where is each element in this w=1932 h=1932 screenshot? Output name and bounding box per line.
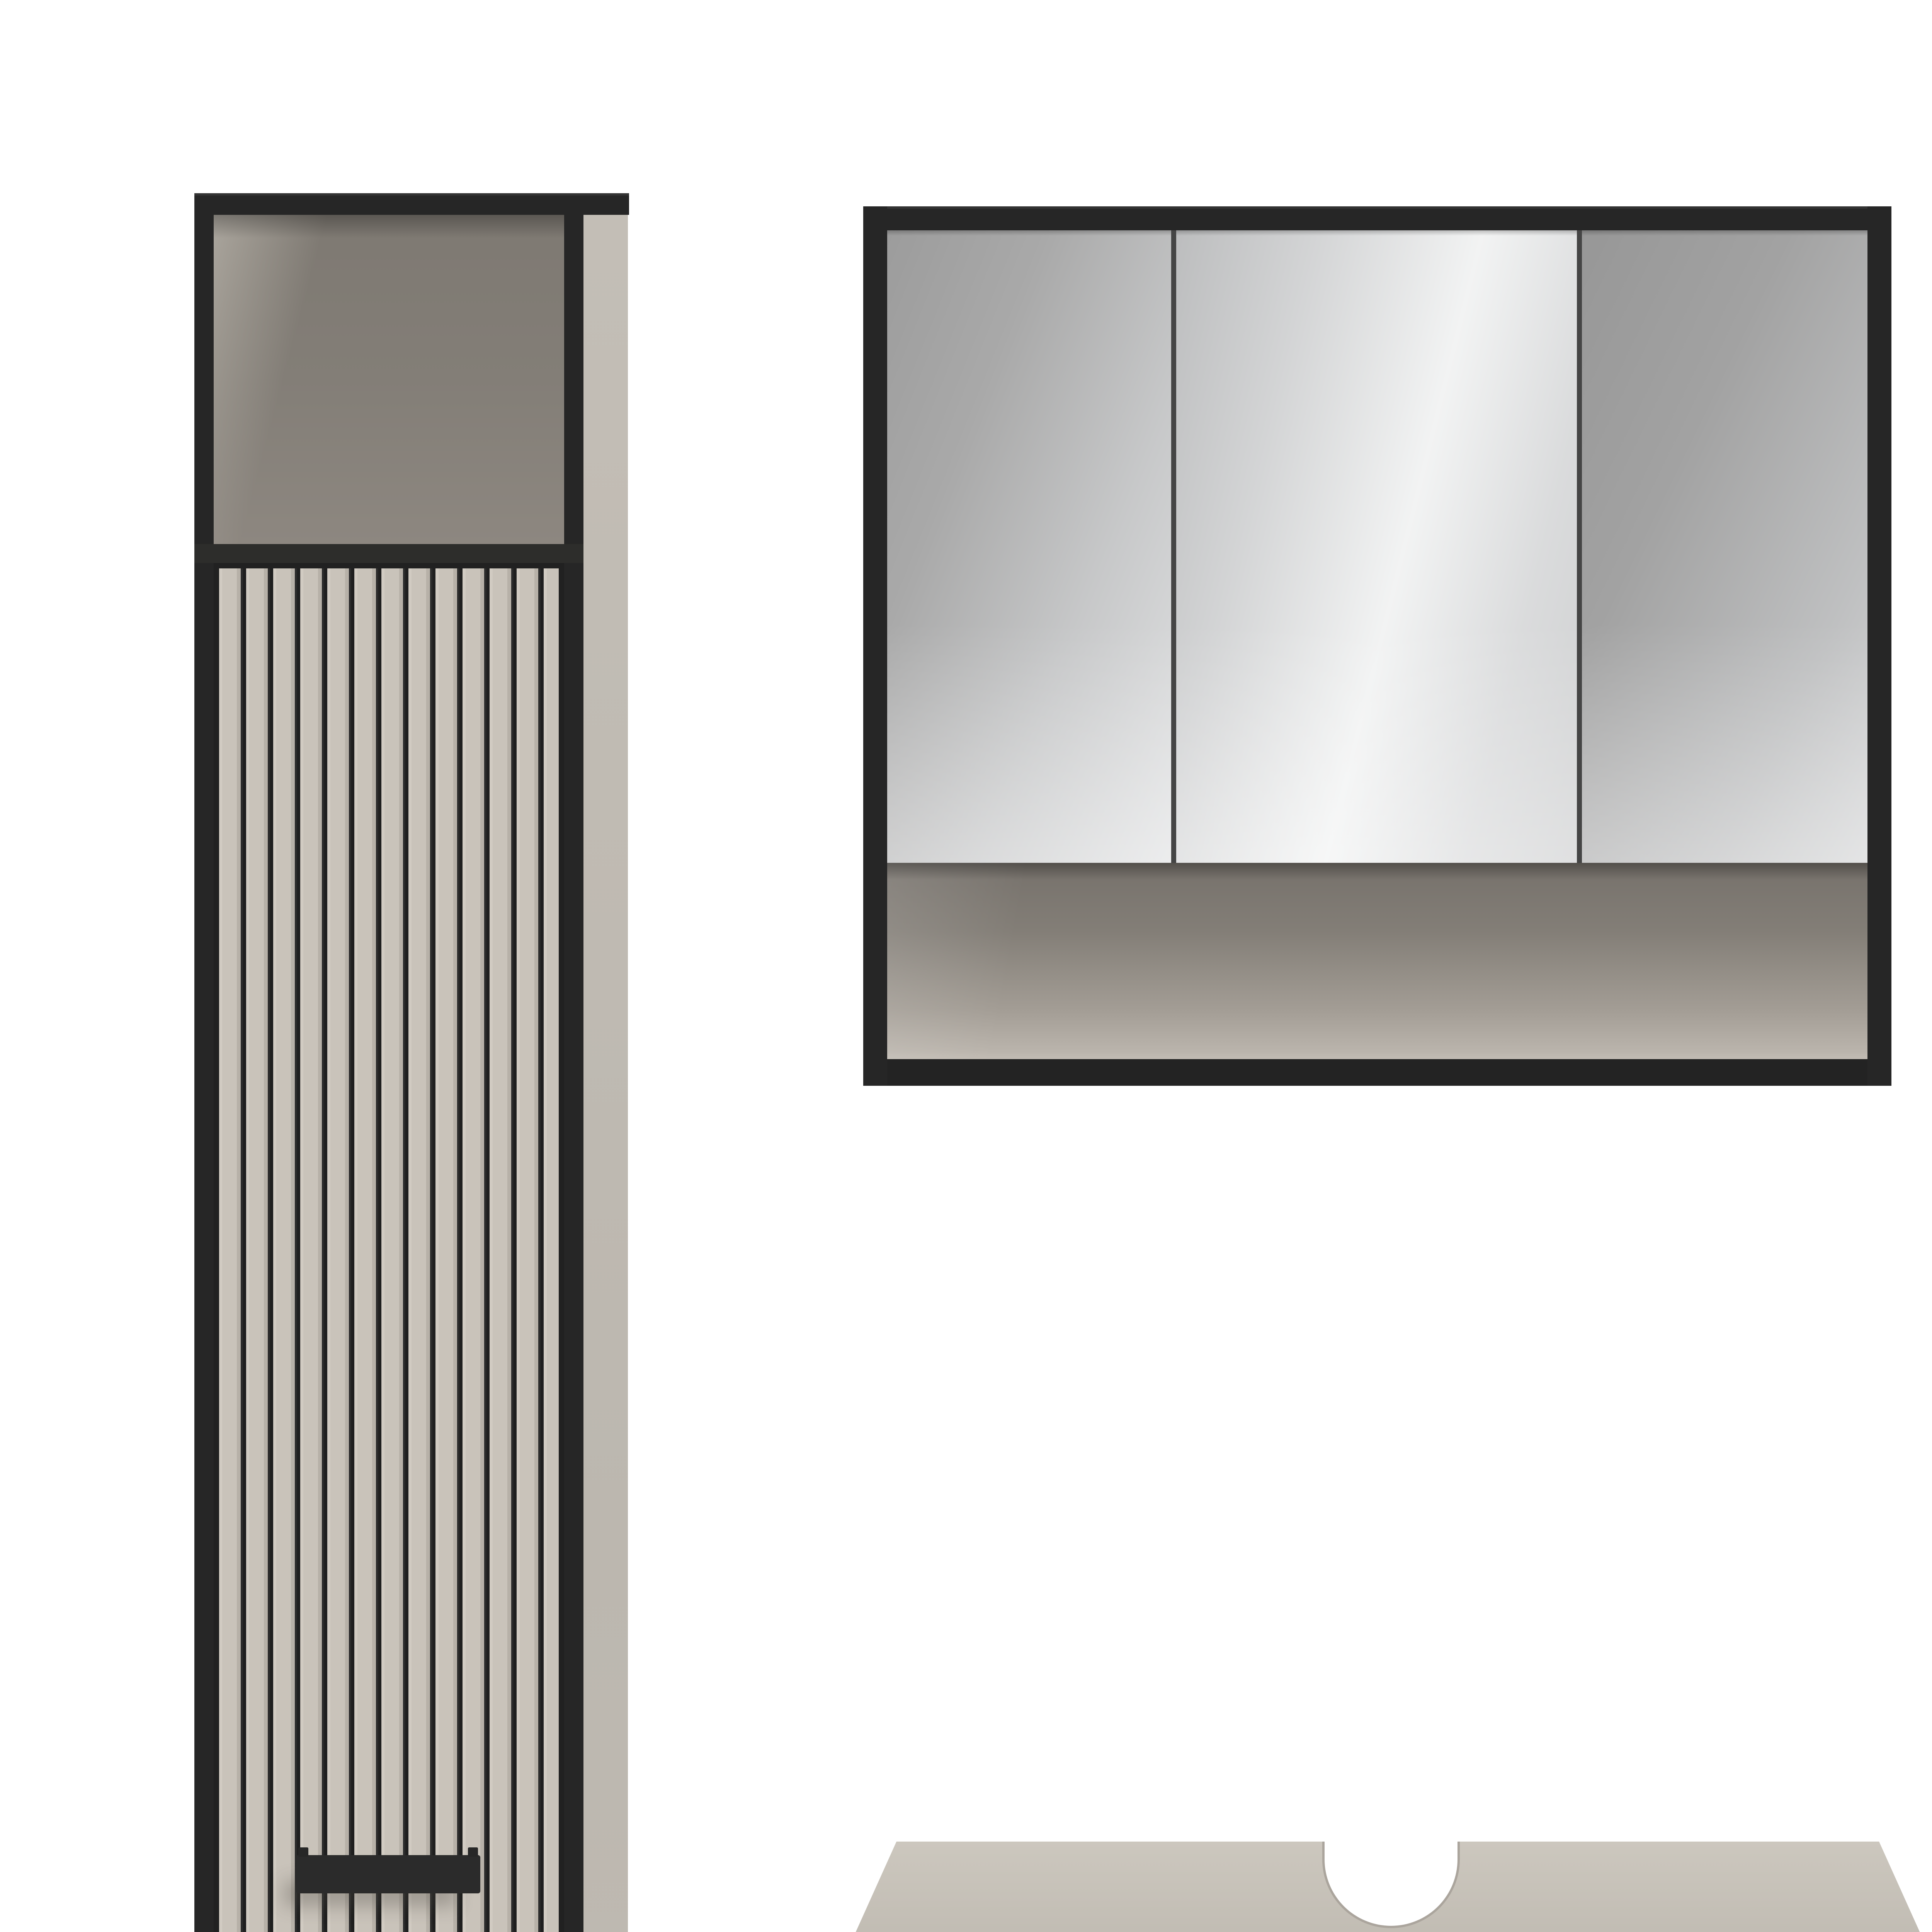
mirror-cabinet-bottom-frame: [863, 1059, 1891, 1086]
product-photo-canvas: [0, 0, 1932, 1932]
mirror-door-gap: [1577, 230, 1582, 863]
vanity-top-panel: [849, 1842, 1926, 1932]
tall-cabinet-shelf-edge-upper: [194, 544, 583, 563]
mirror-door-middle: [1176, 230, 1577, 863]
tall-cabinet-door-slats: [219, 568, 559, 1932]
tall-cabinet-door-handle: [296, 1855, 480, 1893]
tall-cabinet-open-compartment-top: [214, 215, 564, 544]
tall-cabinet-frame-left: [194, 215, 214, 1932]
mirror-door-left: [887, 230, 1171, 863]
mirror-cabinet-open-shelf: [887, 863, 1867, 1059]
mirror-door-gap: [1171, 230, 1176, 863]
mirror-door-right: [1582, 230, 1867, 863]
tall-cabinet-door: [214, 563, 564, 1932]
tall-cabinet-top-frame: [194, 193, 629, 215]
tall-cabinet-side-panel: [583, 215, 628, 1932]
tall-cabinet-frame-right: [564, 215, 583, 1932]
vanity-sink-pipe-cutout: [1322, 1842, 1460, 1928]
mirror-cabinet-frame-right: [1867, 206, 1891, 1086]
mirror-cabinet-top-frame: [863, 206, 1891, 230]
mirror-cabinet-frame-left: [863, 206, 887, 1086]
